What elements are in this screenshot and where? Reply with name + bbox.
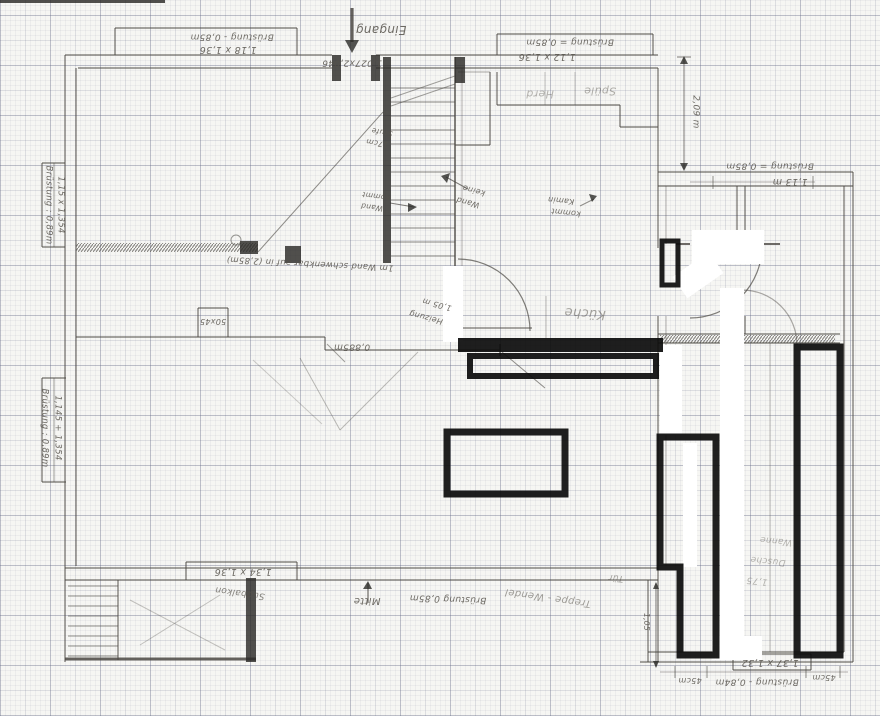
- wall-line: [300, 358, 340, 430]
- wall-line: [327, 344, 345, 362]
- wall-line: [253, 360, 322, 424]
- solid-wall-block: [455, 57, 465, 83]
- solid-wall-block: [240, 241, 258, 254]
- solid-wall-block: [383, 57, 391, 263]
- wall-line: [140, 595, 220, 645]
- marker-filled-block: [458, 338, 663, 352]
- whiteout-patch: [660, 345, 682, 435]
- solid-wall-block: [246, 578, 256, 662]
- solid-wall-block: [285, 246, 301, 263]
- hatched-wall: [76, 243, 258, 252]
- marker-outline-rect: [447, 432, 565, 494]
- marker-outline-rect: [470, 356, 656, 376]
- arrowhead: [653, 661, 659, 668]
- solid-wall-block: [371, 55, 380, 81]
- marker-layer: [447, 241, 840, 655]
- whiteout-patch: [443, 266, 463, 342]
- arrowhead: [680, 163, 688, 171]
- solid-wall-block: [332, 55, 341, 81]
- arrowhead: [345, 40, 359, 53]
- whiteout-patch: [683, 443, 697, 567]
- wall-line: [446, 177, 468, 189]
- arrowhead: [408, 203, 417, 212]
- arrowhead: [363, 581, 372, 589]
- floorplan-linework: [0, 0, 880, 716]
- wall-line: [258, 112, 383, 252]
- marker-outline-rect: [797, 347, 840, 655]
- wall-line: [340, 352, 418, 430]
- solid-wall-block: [0, 0, 165, 3]
- whiteout-patch: [720, 288, 744, 656]
- floorplan-sketch: Eingang1,027x2,046Brüstung - 0,85m1,18 x…: [0, 0, 880, 716]
- door-swing-arc: [458, 259, 530, 331]
- marker-outline-rect: [662, 241, 678, 285]
- hatched-wall: [660, 335, 835, 343]
